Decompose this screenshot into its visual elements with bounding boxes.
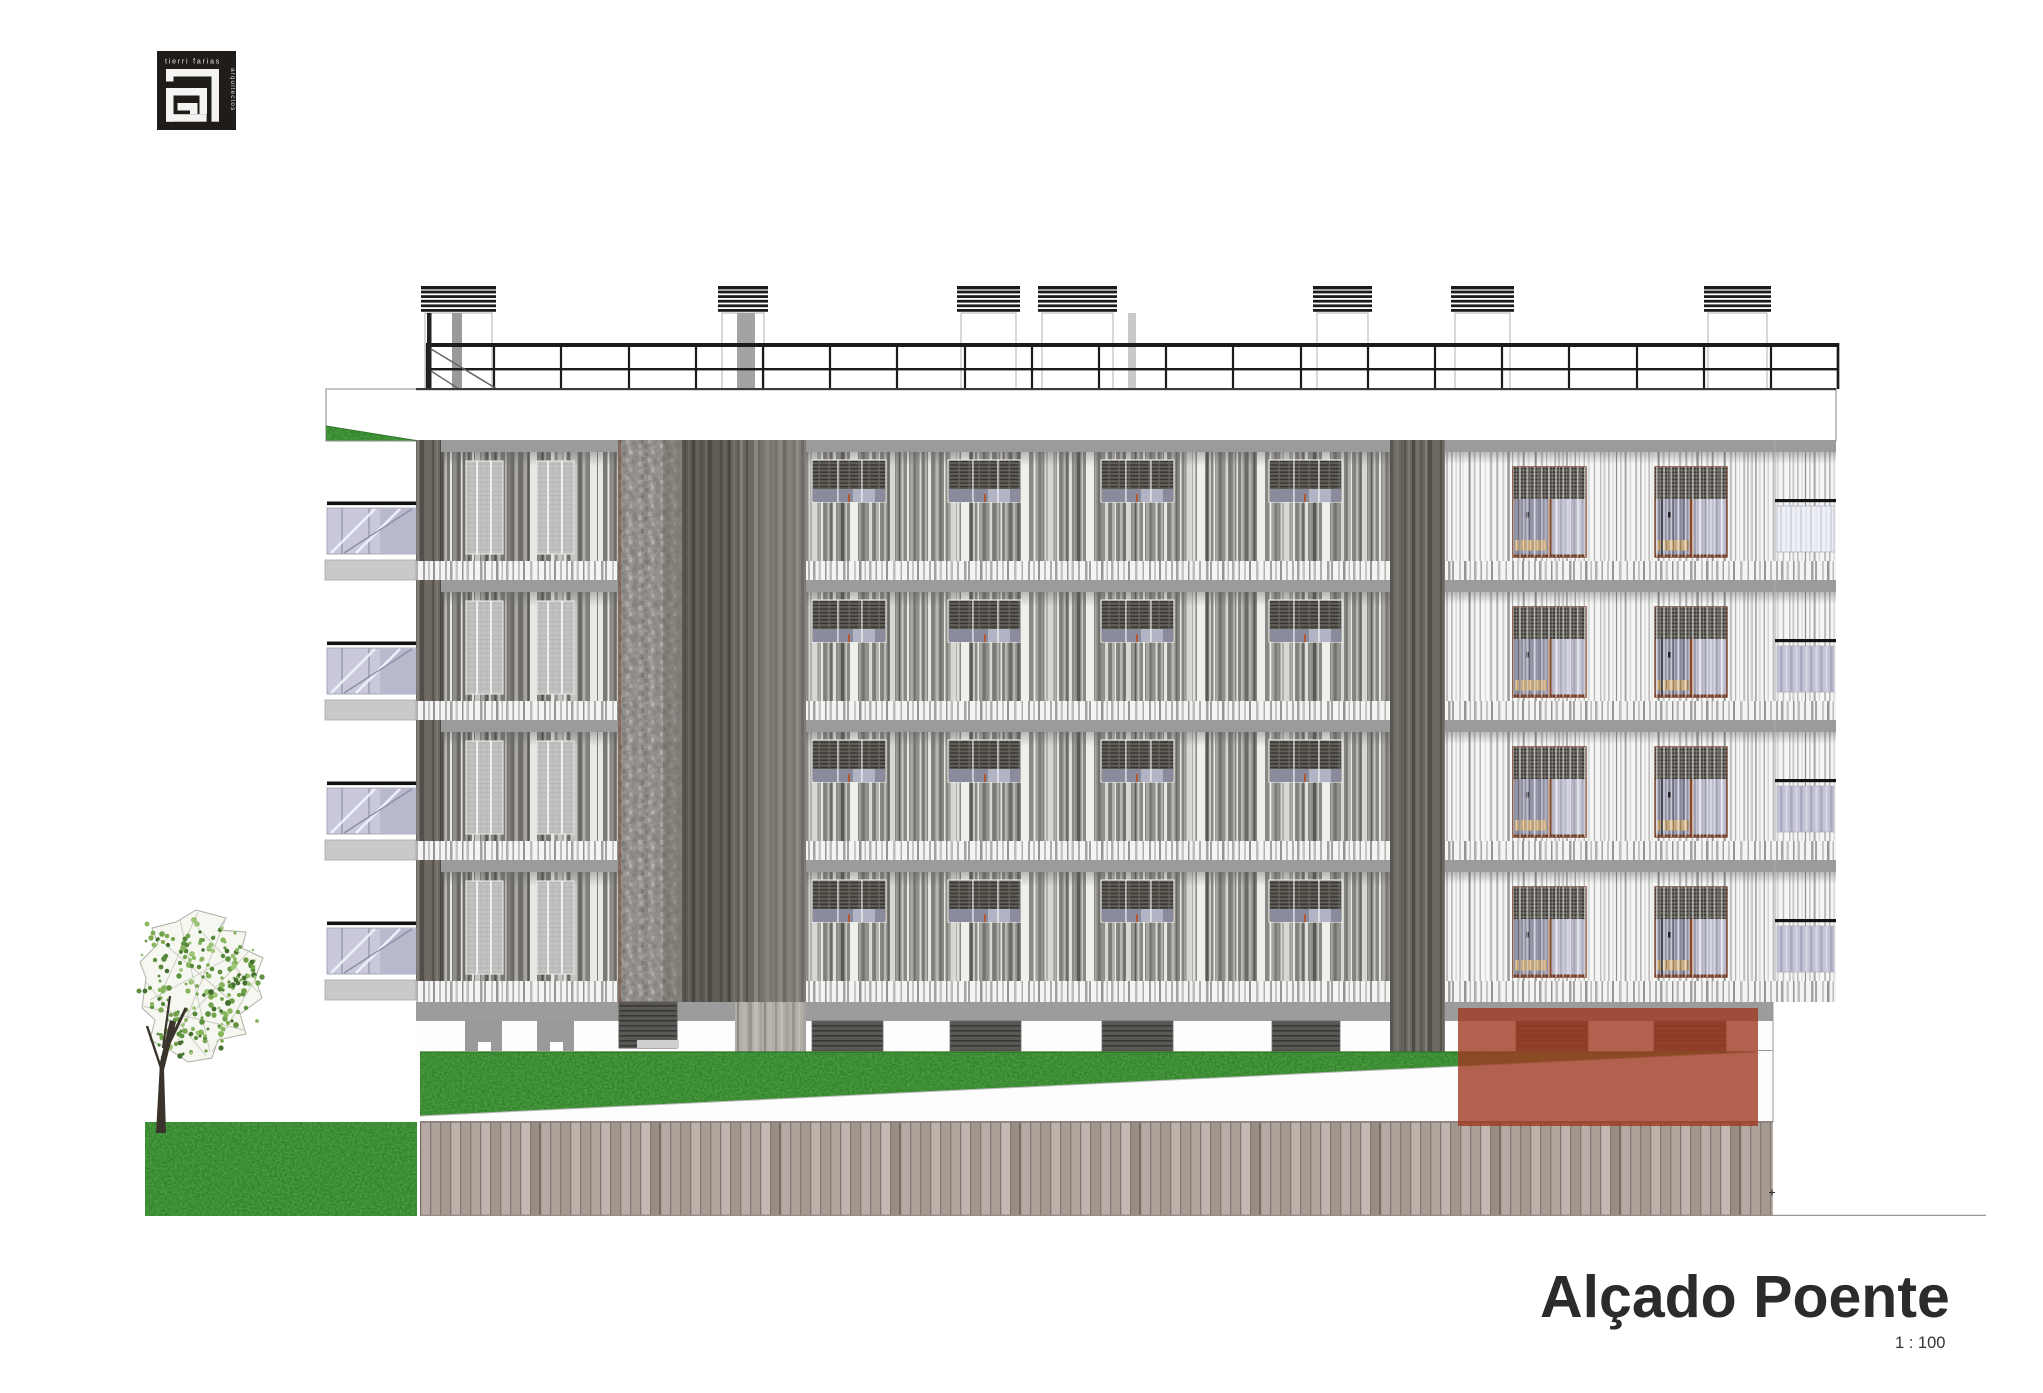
svg-text:Alçado Poente: Alçado Poente [1540,1264,1950,1330]
svg-text:arquitectos: arquitectos [229,68,236,111]
svg-text:tierri farias: tierri farias [165,59,221,66]
svg-text:1 : 100: 1 : 100 [1895,1334,1945,1352]
